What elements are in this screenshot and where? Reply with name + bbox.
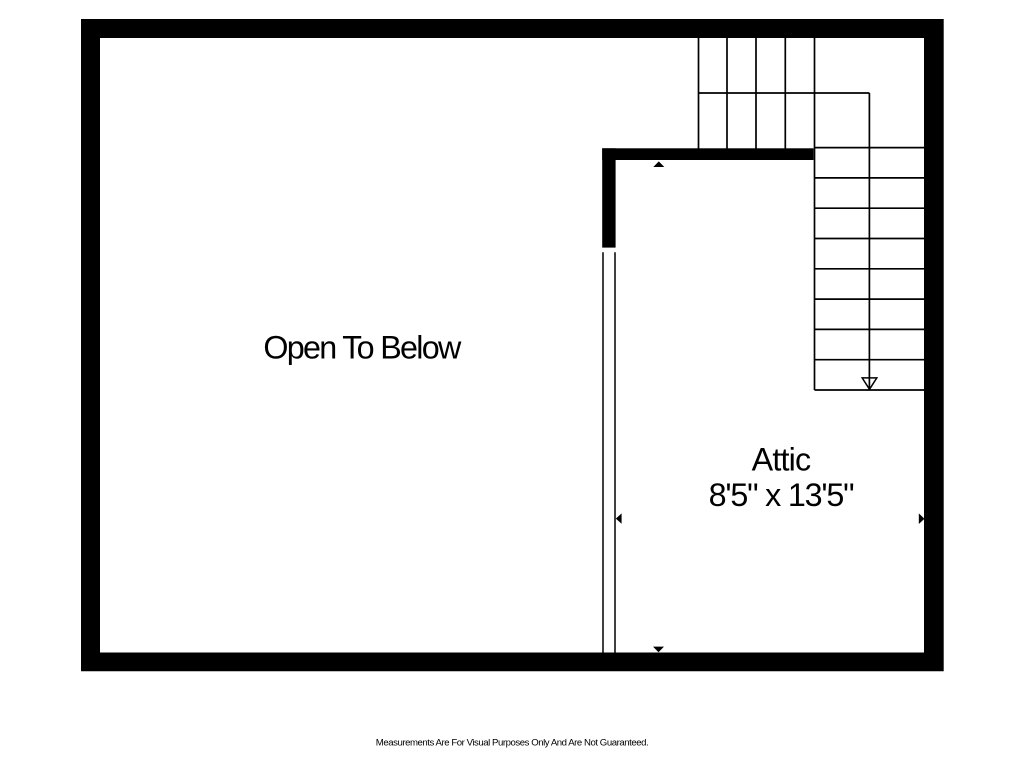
- svg-text:Open To Below: Open To Below: [263, 329, 462, 365]
- svg-text:Attic: Attic: [752, 442, 811, 478]
- svg-text:8'5" x 13'5": 8'5" x 13'5": [709, 477, 855, 513]
- svg-text:Measurements Are For Visual Pu: Measurements Are For Visual Purposes Onl…: [376, 738, 648, 749]
